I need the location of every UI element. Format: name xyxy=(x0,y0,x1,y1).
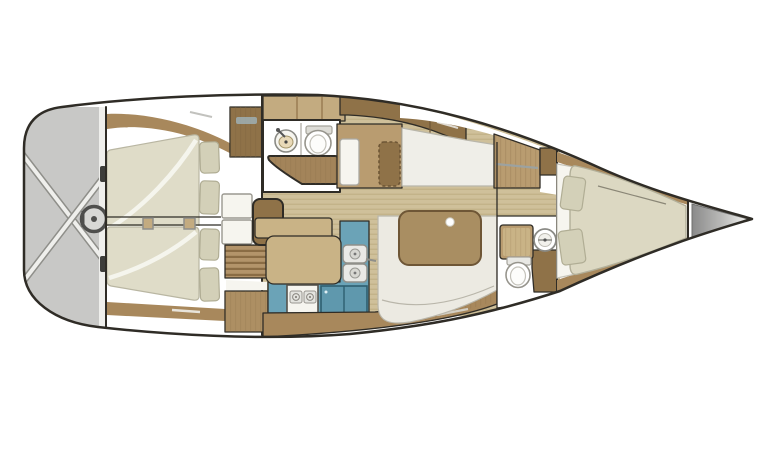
aft-wardrobe xyxy=(230,107,262,157)
companionway-steps-icon xyxy=(225,245,268,278)
toilet-icon-aft xyxy=(305,126,332,156)
floor-plan-svg xyxy=(0,0,766,457)
aft-door-panel-1 xyxy=(222,194,252,218)
aft-head xyxy=(263,96,345,192)
toilet-icon-forward xyxy=(506,257,531,288)
v-berth-cabin xyxy=(557,152,688,291)
forward-head-locker xyxy=(532,250,557,292)
aft-cabin-stbd-pillow-1 xyxy=(199,229,219,261)
corridor-post-2 xyxy=(184,218,195,229)
vberth-pillow-2 xyxy=(558,228,586,265)
bow-side-cabinet xyxy=(540,148,557,175)
aft-wardrobe-grain xyxy=(230,107,262,157)
transom-platform xyxy=(24,107,107,329)
galley-counter-main xyxy=(266,236,341,284)
aft-cabin-port-pillow-1 xyxy=(199,142,219,174)
companionway-cabinet-grain xyxy=(225,291,268,332)
boat-floor-plan xyxy=(0,0,766,457)
table-lamp-dot xyxy=(446,218,454,226)
aft-head-lockers xyxy=(263,96,345,121)
round-sink-icon-forward xyxy=(534,229,556,251)
steering-wheel-icon xyxy=(82,207,107,232)
wardrobe-door xyxy=(340,139,359,185)
stove-icon xyxy=(287,285,318,313)
corridor-post-1 xyxy=(143,218,153,229)
galley-counter-aft xyxy=(255,218,332,238)
aft-cabin-stbd-pillow-2 xyxy=(199,268,219,302)
aft-door-panel-2 xyxy=(222,220,252,244)
aft-wardrobe-glint xyxy=(236,117,257,124)
hanging-locker-icon xyxy=(379,142,400,186)
forward-head-counter-grain xyxy=(503,228,530,256)
galley xyxy=(255,218,376,313)
aft-cabin-port-pillow-2 xyxy=(199,181,219,215)
vberth-pillow-1 xyxy=(560,176,586,212)
vberth-bed xyxy=(570,166,686,275)
fridge-icon xyxy=(321,286,367,313)
saloon-table xyxy=(399,211,481,265)
